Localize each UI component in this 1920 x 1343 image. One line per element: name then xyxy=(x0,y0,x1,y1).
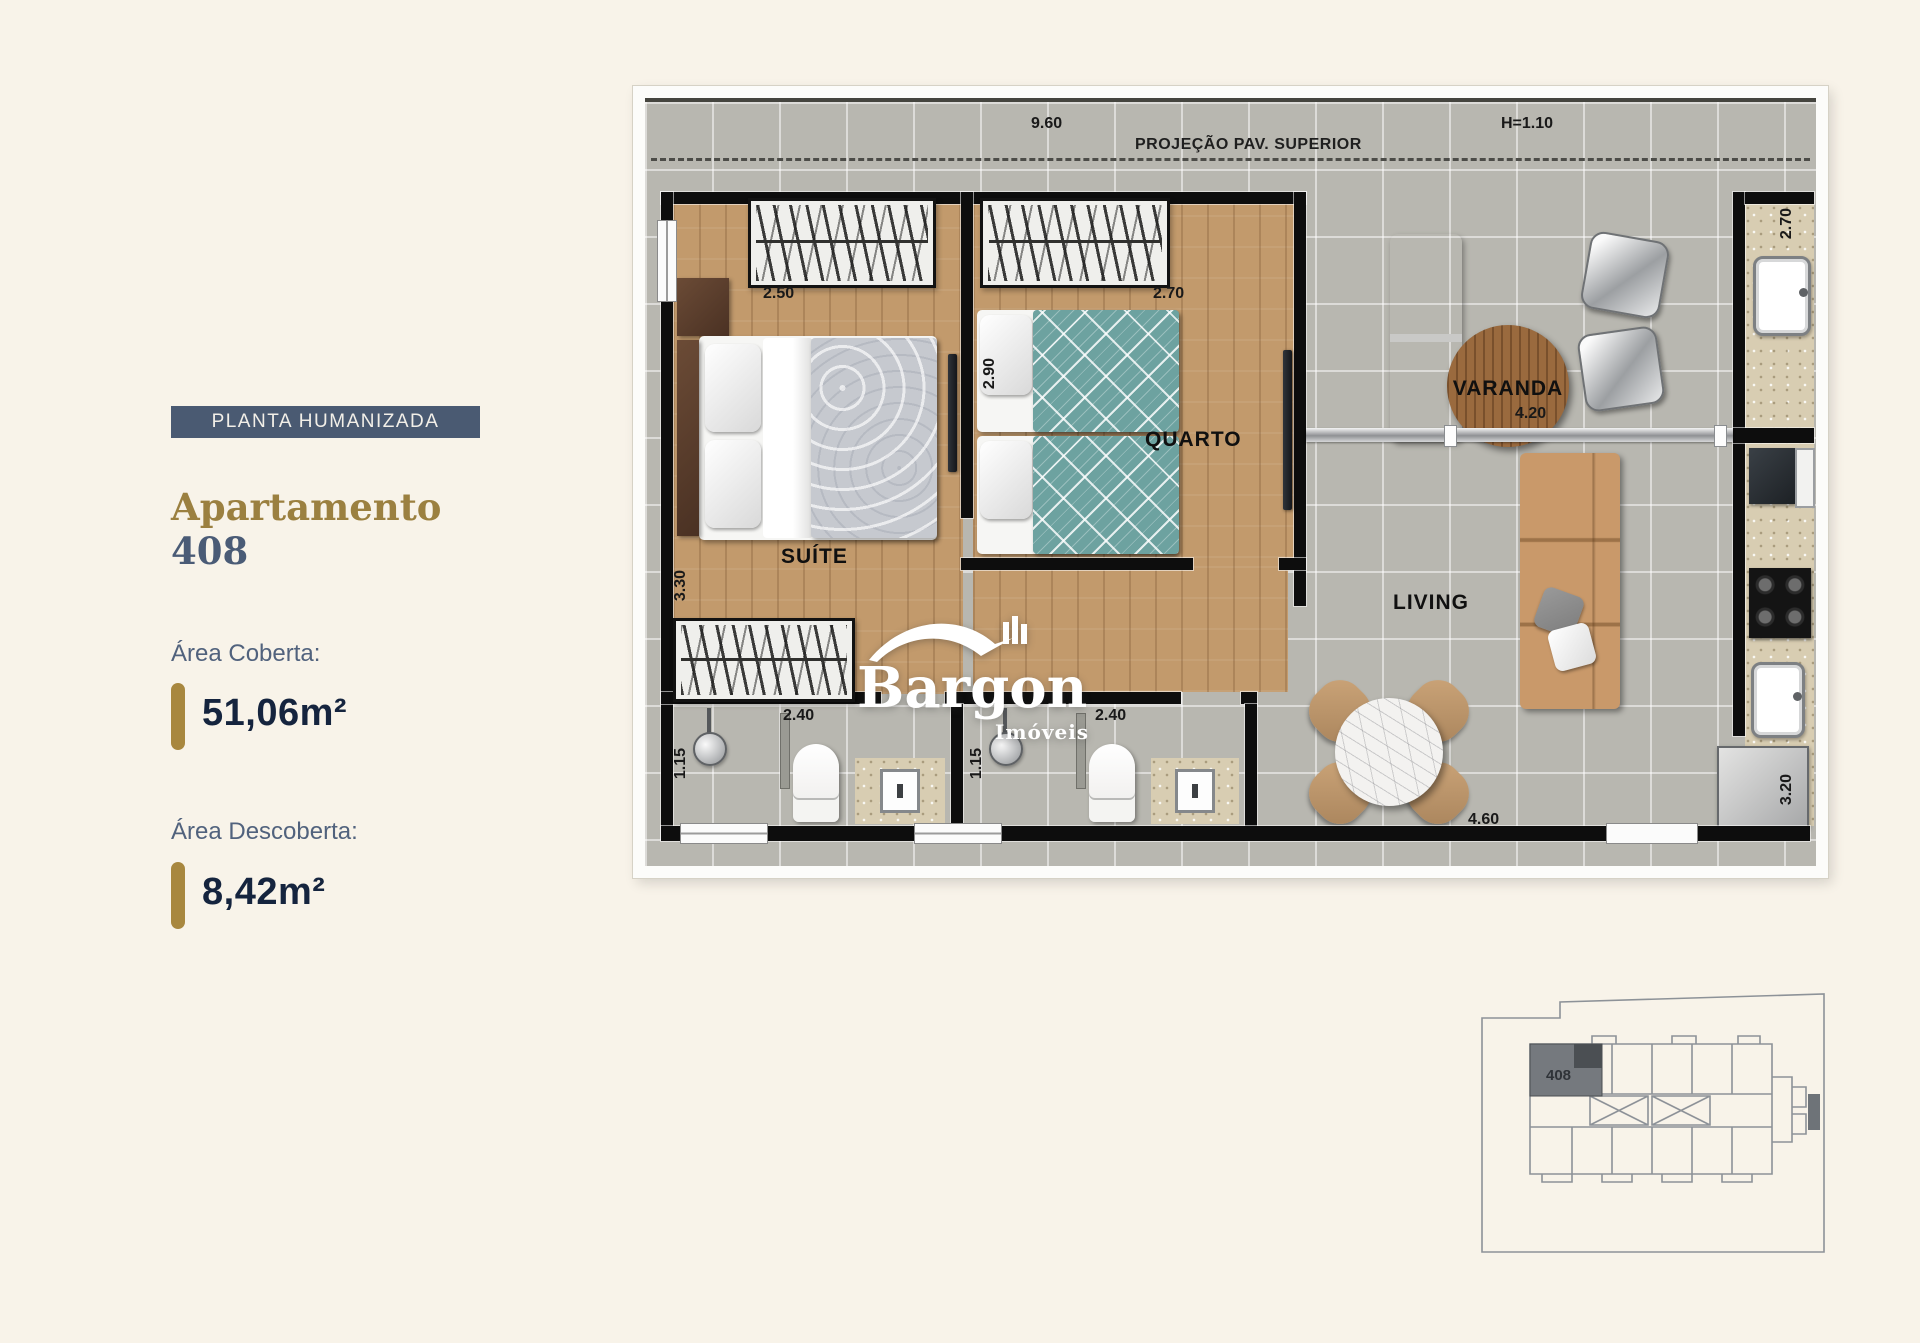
wall-quarto-bottom-a xyxy=(961,558,1193,570)
dim-kitchen-bottom-depth: 3.20 xyxy=(1779,774,1795,805)
faucet-icon xyxy=(1793,692,1802,701)
railing-post xyxy=(1714,425,1727,447)
watermark: Bargon Imóveis xyxy=(857,604,1137,754)
railing-post xyxy=(1444,425,1457,447)
entrance-mark xyxy=(1808,1094,1820,1130)
stove xyxy=(1749,568,1811,638)
page: PLANTA HUMANIZADA Apartamento 408 Área C… xyxy=(0,0,1920,1343)
fridge xyxy=(1749,448,1795,504)
key-plan: 408 xyxy=(1472,982,1832,1257)
apartment-title: Apartamento xyxy=(171,485,441,529)
kitchen-cabinet xyxy=(1795,448,1815,508)
open-area-label: Área Descoberta: xyxy=(171,818,358,846)
quarto-pillow-2 xyxy=(980,441,1032,519)
wall-suite-quarto xyxy=(961,192,973,518)
bath1-sink-counter xyxy=(855,758,945,824)
stairs-icon xyxy=(1652,1096,1710,1125)
wall-kitchen-left xyxy=(1733,192,1745,736)
dim-terrace-width: 9.60 xyxy=(1031,116,1062,132)
wardrobe-rail xyxy=(989,240,1162,243)
watermark-sub: Imóveis xyxy=(995,720,1089,744)
suite-tv xyxy=(948,354,957,472)
suite-duvet xyxy=(811,338,937,538)
room-label-quarto: QUARTO xyxy=(1145,429,1242,450)
quarto-duvet-2 xyxy=(1033,436,1179,554)
watermark-brand: Bargon xyxy=(857,660,1087,716)
suite-headboard xyxy=(677,340,699,536)
dim-living-width: 4.60 xyxy=(1468,812,1499,828)
dim-bath1-width: 2.40 xyxy=(783,708,814,724)
suite-pillow xyxy=(705,344,761,432)
bath1-window xyxy=(681,824,767,843)
wall-kitchen-top xyxy=(1745,192,1814,204)
projection-label: PROJEÇÃO PAV. SUPERIOR xyxy=(1135,136,1362,154)
wall-quarto-right xyxy=(1294,192,1306,606)
bath2-window xyxy=(915,824,1001,843)
unit-408-dark-corner xyxy=(1574,1044,1602,1068)
varanda-chair xyxy=(1579,230,1671,321)
tap-icon xyxy=(897,784,903,798)
dim-parapet-height: H=1.10 xyxy=(1501,116,1553,132)
wall-bottom-a xyxy=(661,826,681,841)
dim-kitchen-top-depth: 2.70 xyxy=(1779,208,1795,239)
dim-bath1-depth: 1.15 xyxy=(673,748,689,779)
varanda-sofa xyxy=(1390,234,1462,442)
plan-type-badge: PLANTA HUMANIZADA xyxy=(171,406,480,438)
suite-sheet-fold xyxy=(763,338,813,538)
washing-machine xyxy=(1717,746,1809,828)
varanda-chair xyxy=(1576,325,1666,413)
tap-icon xyxy=(1192,784,1198,798)
stairs-icon xyxy=(1590,1096,1648,1125)
wardrobe-rail xyxy=(756,240,927,243)
dim-quarto-width: 2.70 xyxy=(1153,286,1184,302)
wall-bottom-d xyxy=(1697,826,1810,841)
living-sofa xyxy=(1520,453,1620,709)
entry-door-opening xyxy=(1607,824,1697,843)
room-label-varanda: VARANDA xyxy=(1445,378,1571,399)
dim-suite-width: 2.50 xyxy=(763,286,794,302)
apartment-number: 408 xyxy=(171,529,248,573)
wall-kitchen-band xyxy=(1733,428,1814,443)
open-area-value: 8,42m² xyxy=(202,871,325,914)
suite-window xyxy=(658,221,676,301)
shower-pipe xyxy=(707,708,711,734)
quarto-duvet-1 xyxy=(1033,310,1179,432)
covered-area-accent-bar xyxy=(171,683,185,750)
quarto-tv xyxy=(1283,350,1292,510)
varanda-railing xyxy=(1306,428,1733,442)
shower-partition xyxy=(781,714,789,788)
wall-bath2-right xyxy=(1245,704,1257,828)
wall-bottom-c xyxy=(1001,826,1607,841)
keyplan-unit-label: 408 xyxy=(1546,1067,1571,1084)
floor-plan: 9.60 PROJEÇÃO PAV. SUPERIOR H=1.10 xyxy=(633,86,1828,878)
suite-nightstand xyxy=(677,278,729,336)
suite-wardrobe-bottom xyxy=(673,618,855,702)
suite-wardrobe-top xyxy=(748,198,936,288)
open-area-accent-bar xyxy=(171,862,185,929)
room-label-suite: SUÍTE xyxy=(781,546,848,567)
wall-bottom-b xyxy=(767,826,915,841)
wall-left-a xyxy=(661,192,673,221)
dim-quarto-depth: 2.90 xyxy=(982,358,998,389)
toilet xyxy=(793,744,839,822)
covered-area-label: Área Coberta: xyxy=(171,640,320,668)
toilet xyxy=(1089,744,1135,822)
suite-pillow xyxy=(705,440,761,528)
quarto-wardrobe xyxy=(980,198,1170,288)
upper-floor-projection-line xyxy=(651,158,1810,161)
wall-quarto-bottom-b xyxy=(1279,558,1306,570)
dining-table xyxy=(1335,698,1443,806)
bath2-sink-counter xyxy=(1151,758,1239,824)
room-label-living: LIVING xyxy=(1393,592,1469,613)
shower-head-icon xyxy=(693,732,727,766)
covered-area-value: 51,06m² xyxy=(202,692,347,735)
faucet-icon xyxy=(1799,288,1808,297)
wardrobe-rail xyxy=(681,658,846,661)
dim-suite-depth: 3.30 xyxy=(673,570,689,601)
dim-varanda-width: 4.20 xyxy=(1515,406,1546,422)
wall-bath-top-c xyxy=(1241,692,1257,704)
